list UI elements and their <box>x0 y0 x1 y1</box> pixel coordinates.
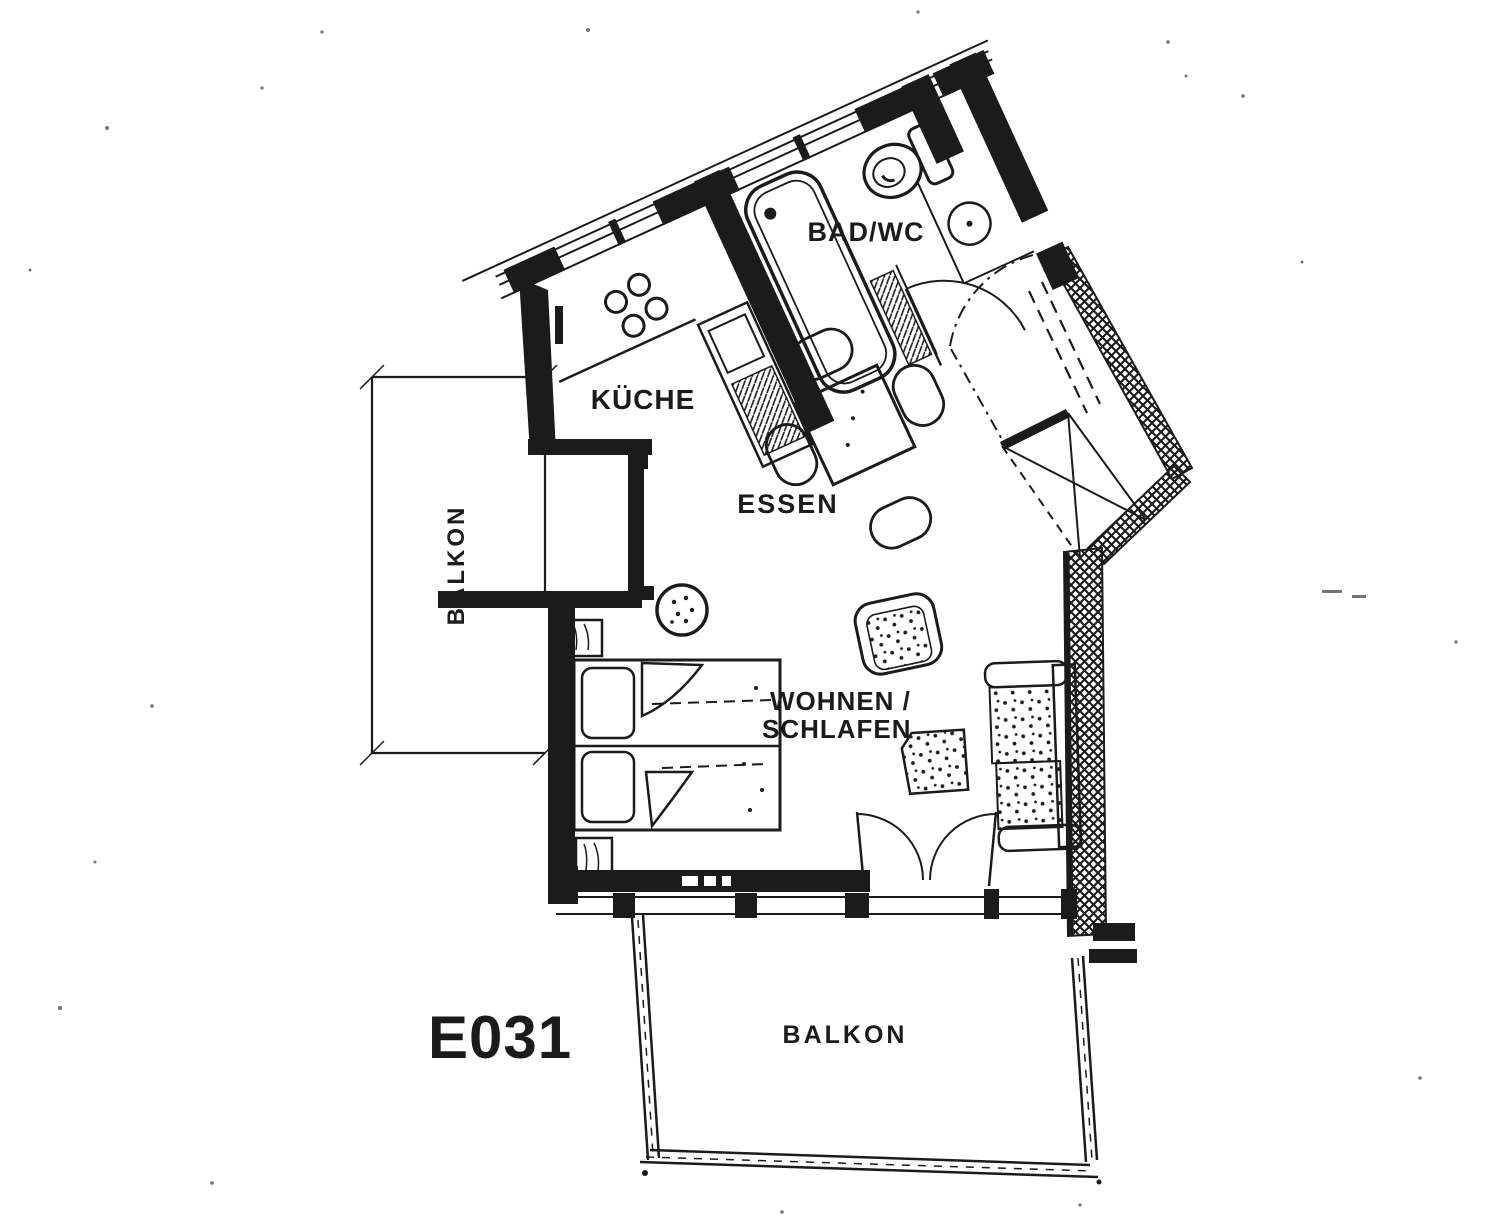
room-label-bad-wc: BAD/WC <box>808 217 925 247</box>
paper-background <box>0 0 1500 1221</box>
room-label-balkon-left: BALKON <box>443 505 470 626</box>
room-label-schlafen: SCHLAFEN <box>762 714 912 744</box>
unit-label: E031 <box>428 1004 572 1071</box>
room-label-kueche: KÜCHE <box>591 384 696 415</box>
wall-living-left <box>548 604 575 872</box>
wall-step <box>1093 923 1135 941</box>
room-label-wohnen: WOHNEN / <box>770 686 911 716</box>
wall-step <box>1089 949 1137 963</box>
floorplan-drawing: BAD/WC KÜCHE ESSEN WOHNEN / SCHLAFEN BAL… <box>0 0 1500 1221</box>
room-label-balkon-bottom: BALKON <box>783 1021 908 1049</box>
wall-kitchen-jamb <box>555 306 563 344</box>
floorplan-scan-page: BAD/WC KÜCHE ESSEN WOHNEN / SCHLAFEN BAL… <box>0 0 1500 1221</box>
room-label-essen: ESSEN <box>737 489 839 519</box>
wall-balcony-door <box>628 450 644 600</box>
